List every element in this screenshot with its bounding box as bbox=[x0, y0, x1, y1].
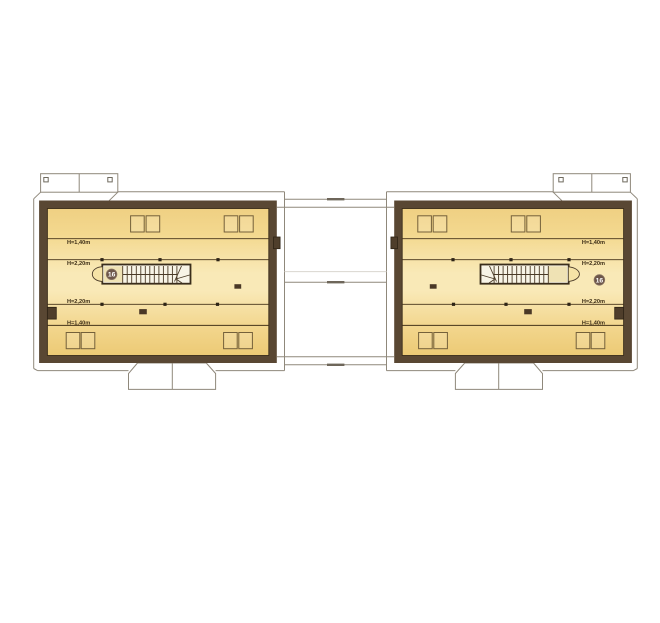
svg-text:H=2,20m: H=2,20m bbox=[582, 261, 605, 267]
svg-text:16: 16 bbox=[596, 277, 604, 284]
svg-text:H=2,20m: H=2,20m bbox=[67, 299, 90, 305]
svg-text:H=1,40m: H=1,40m bbox=[582, 320, 605, 326]
svg-text:H=1,40m: H=1,40m bbox=[67, 240, 90, 246]
svg-text:H=2,20m: H=2,20m bbox=[67, 261, 90, 267]
svg-text:H=2,20m: H=2,20m bbox=[582, 299, 605, 305]
svg-text:16: 16 bbox=[108, 272, 116, 279]
svg-text:H=1,40m: H=1,40m bbox=[67, 320, 90, 326]
svg-text:H=1,40m: H=1,40m bbox=[582, 240, 605, 246]
